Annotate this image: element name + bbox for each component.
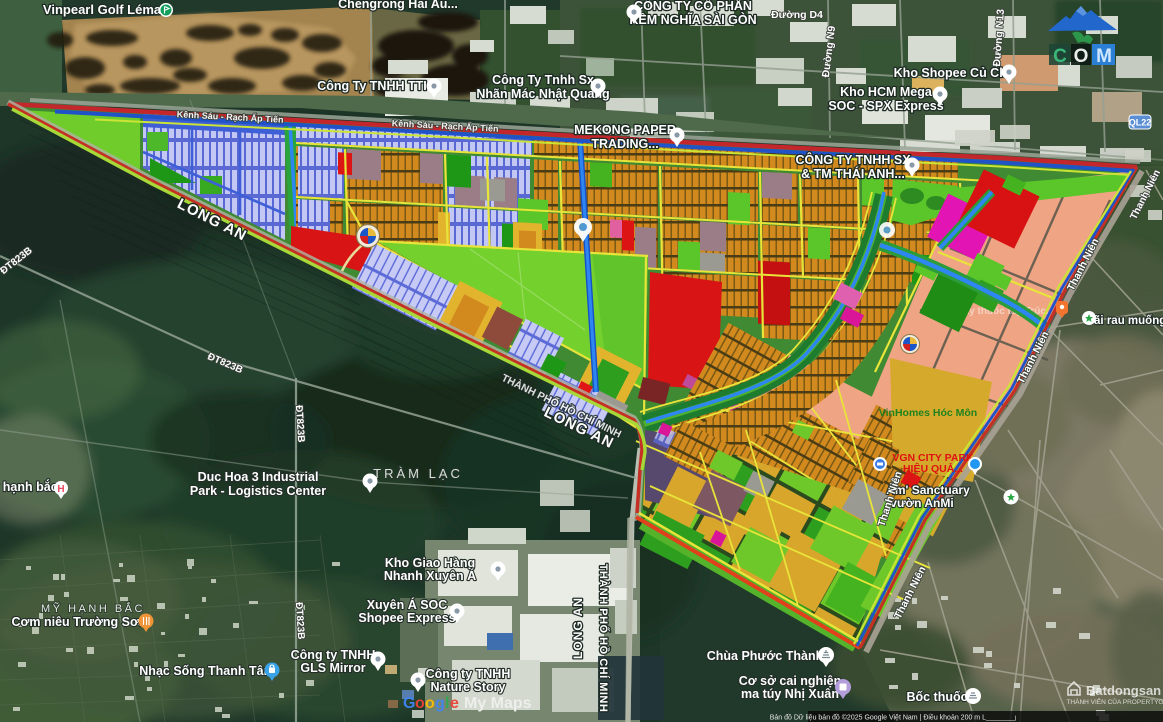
svg-text:Chengrong Hai Au...: Chengrong Hai Au... bbox=[338, 0, 458, 11]
svg-text:Vinpearl Golf Léman: Vinpearl Golf Léman bbox=[43, 2, 169, 17]
svg-text:Xuyên Á SOC: Xuyên Á SOC bbox=[367, 597, 448, 612]
svg-text:Bốc thuốc: Bốc thuốc bbox=[906, 690, 967, 704]
svg-text:l: l bbox=[445, 695, 449, 712]
svg-text:Công Ty Tnhh Sx: Công Ty Tnhh Sx bbox=[492, 73, 594, 87]
svg-text:& TM THÁI ANH...: & TM THÁI ANH... bbox=[801, 166, 905, 181]
svg-text:MỸ HẠNH BẮC: MỸ HẠNH BẮC bbox=[41, 602, 145, 615]
svg-text:Công ty TNHH: Công ty TNHH bbox=[426, 667, 511, 681]
svg-text:Kho Giao Hàng: Kho Giao Hàng bbox=[385, 556, 475, 570]
svg-text:Batdongsan: Batdongsan bbox=[1086, 683, 1161, 698]
svg-text:My Maps: My Maps bbox=[464, 695, 532, 712]
svg-text:TRADING...: TRADING... bbox=[591, 137, 658, 151]
svg-text:Kho Shopee Củ Chi: Kho Shopee Củ Chi bbox=[894, 66, 1011, 80]
svg-text:SOC - SPX Express: SOC - SPX Express bbox=[828, 99, 943, 113]
svg-text:Kho HCM Mega: Kho HCM Mega bbox=[840, 85, 933, 99]
svg-text:CÔNG TY CỔ PHẦN: CÔNG TY CỔ PHẦN bbox=[634, 0, 752, 13]
svg-text:Công ty TNHH: Công ty TNHH bbox=[291, 648, 376, 662]
svg-text:g: g bbox=[435, 695, 445, 712]
svg-text:Đường D4: Đường D4 bbox=[771, 9, 823, 21]
svg-text:MEKONG PAPER: MEKONG PAPER bbox=[574, 123, 676, 137]
svg-text:Park - Logistics Center: Park - Logistics Center bbox=[190, 484, 326, 498]
svg-text:Công Ty TNHH TTI: Công Ty TNHH TTI bbox=[317, 79, 426, 93]
svg-text:vườn AnMi: vườn AnMi bbox=[890, 496, 953, 510]
svg-text:o: o bbox=[415, 695, 425, 712]
svg-text:THÀNH PHỐ HỒ CHÍ MINH: THÀNH PHỐ HỒ CHÍ MINH bbox=[597, 564, 611, 713]
svg-text:G: G bbox=[403, 695, 415, 712]
svg-text:Bãi rau muống: Bãi rau muống bbox=[1086, 315, 1163, 327]
svg-text:o: o bbox=[425, 695, 435, 712]
svg-text:Duc Hoa 3 Industrial: Duc Hoa 3 Industrial bbox=[198, 470, 319, 484]
svg-text:Cơm niêu Trường Sơn: Cơm niêu Trường Sơn bbox=[11, 615, 146, 629]
svg-text:e: e bbox=[450, 695, 459, 712]
svg-text:Shopee Express: Shopee Express bbox=[358, 611, 455, 625]
svg-text:ỹ hạnh bắc: ỹ hạnh bắc bbox=[0, 479, 58, 494]
svg-text:Nhãn Mác Nhật Quang: Nhãn Mác Nhật Quang bbox=[476, 87, 609, 101]
svg-text:Nhạc Sống Thanh Tâm: Nhạc Sống Thanh Tâm bbox=[139, 664, 274, 678]
svg-text:VinHomes Hóc Môn: VinHomes Hóc Môn bbox=[879, 407, 977, 419]
svg-text:QL22: QL22 bbox=[1129, 118, 1152, 128]
svg-text:CÔNG TY TNHH SX: CÔNG TY TNHH SX bbox=[795, 152, 911, 167]
svg-text:O: O bbox=[1074, 46, 1089, 67]
svg-text:HIỆU QUẢ...: HIỆU QUẢ... bbox=[903, 462, 963, 475]
svg-text:C: C bbox=[1053, 46, 1067, 67]
svg-text:THÀNH VIÊN CỦA PROPERTYGURU: THÀNH VIÊN CỦA PROPERTYGURU bbox=[1066, 697, 1163, 706]
svg-text:ma túy Nhị Xuân: ma túy Nhị Xuân bbox=[741, 687, 839, 701]
svg-text:Nhanh Xuyên Á: Nhanh Xuyên Á bbox=[384, 568, 476, 583]
svg-text:Bản đồ Dữ liệu bản đồ ©2025: Bản đồ Dữ liệu bản đồ ©2025 Google Việt … bbox=[770, 713, 1020, 722]
svg-text:TRÀM LẠC: TRÀM LẠC bbox=[373, 466, 463, 481]
svg-text:Cơ sở cai nghiện: Cơ sở cai nghiện bbox=[739, 674, 842, 688]
svg-text:Chùa Phước Thành: Chùa Phước Thành bbox=[707, 649, 824, 663]
svg-text:M: M bbox=[1096, 46, 1112, 67]
svg-text:GLS Mirror: GLS Mirror bbox=[300, 661, 365, 675]
svg-text:LONG AN: LONG AN bbox=[571, 597, 585, 659]
svg-text:H: H bbox=[57, 484, 64, 495]
svg-text:Nature Story: Nature Story bbox=[430, 680, 505, 694]
svg-text:KỀM NGHĨA SÀI GÒN: KỀM NGHĨA SÀI GÒN bbox=[629, 12, 756, 27]
